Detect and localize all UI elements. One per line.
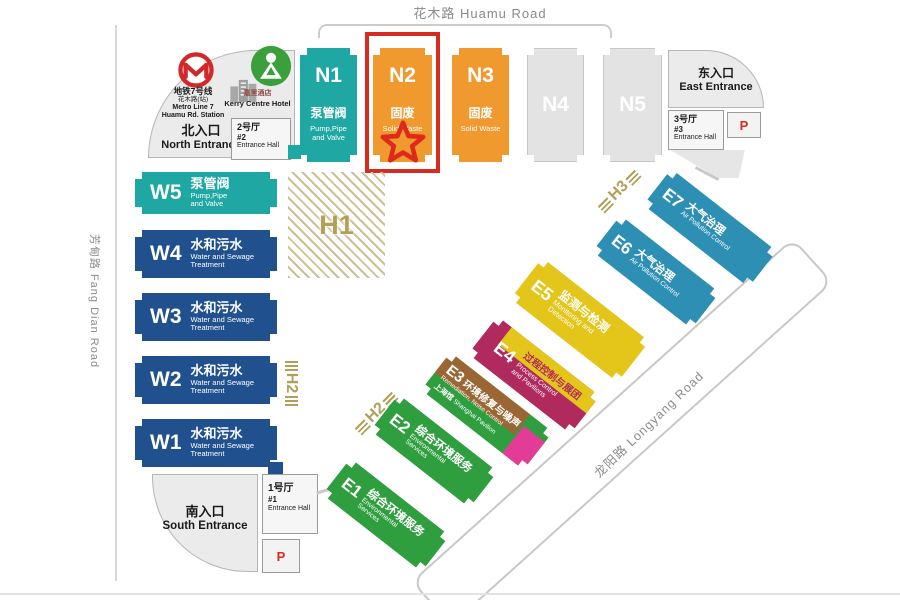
north-connector — [288, 145, 301, 159]
south-connector-tab — [268, 462, 283, 474]
hotel-name-cn: 嘉里酒店 — [205, 90, 310, 99]
hatch-decoration — [285, 395, 298, 406]
entrance-hall-2[interactable]: 2号厅 #2 Entrance Hall — [231, 118, 291, 160]
east-entrance-en: East Entrance — [669, 81, 763, 93]
hall-n3-cn: 固废 — [468, 104, 492, 121]
hall-w2[interactable]: W2 水和污水 Water and SewageTreatment — [135, 356, 277, 404]
hall-w5-id: W5 — [150, 181, 182, 205]
hall-e4-id: E4 — [490, 337, 520, 367]
zone-h2-west: H2 — [276, 352, 306, 414]
hall2-num: #2 — [237, 133, 290, 143]
hotel-name-en: Kerry Centre Hotel — [205, 99, 310, 108]
zone-h1-label: H1 — [319, 210, 354, 241]
south-parking-label: P — [277, 549, 286, 564]
hall-w1-id: W1 — [150, 431, 182, 455]
east-entrance-cn: 东入口 — [669, 64, 763, 81]
south-entrance-area[interactable]: 南入口 South Entrance — [152, 474, 258, 572]
hall-w4-cn: 水和污水 — [191, 238, 255, 252]
hall-w2-cn: 水和污水 — [191, 364, 255, 378]
hall-w5-en: Pump,Pipeand Valve — [191, 192, 230, 209]
hall-n3[interactable]: N3 固废 Solid Waste — [452, 48, 509, 162]
hall-n5[interactable]: N5 — [603, 48, 662, 162]
hall3-en: Entrance Hall — [674, 134, 723, 142]
hall-n4-id: N4 — [542, 93, 569, 117]
kerry-hotel-label: 嘉里酒店 Kerry Centre Hotel — [205, 90, 310, 108]
hall1-num: #1 — [268, 495, 317, 505]
huamu-road-curb — [318, 24, 612, 38]
hall-w2-en: Water and SewageTreatment — [191, 379, 255, 396]
hall-w1[interactable]: W1 水和污水 Water and SewageTreatment — [135, 419, 277, 467]
hall-w3-cn: 水和污水 — [191, 301, 255, 315]
hall-w3-en: Water and SewageTreatment — [191, 316, 255, 333]
hall2-en: Entrance Hall — [237, 142, 290, 150]
hall-n1-id: N1 — [315, 64, 342, 88]
zone-h3: H3 — [582, 154, 656, 228]
hatch-decoration — [354, 418, 371, 435]
hall-w4[interactable]: W4 水和污水 Water and SewageTreatment — [135, 230, 277, 278]
hall-n1[interactable]: N1 泵管阀 Pump,Pipeand Valve — [300, 48, 357, 162]
n2-star-icon — [380, 120, 426, 164]
hall-n3-id: N3 — [467, 64, 494, 88]
hall-w3-id: W3 — [150, 305, 182, 329]
fangdian-road-label: 芳甸路 Fang Dian Road — [87, 191, 103, 411]
south-entrance-en: South Entrance — [153, 520, 257, 532]
hall-n5-id: N5 — [619, 93, 646, 117]
south-entrance-cn: 南入口 — [153, 501, 257, 520]
hall-w2-id: W2 — [150, 368, 182, 392]
hall-w1-en: Water and SewageTreatment — [191, 442, 255, 459]
hall-w4-id: W4 — [150, 242, 182, 266]
hall-w1-cn: 水和污水 — [191, 427, 255, 441]
expo-floor-map: 花木路 Huamu Road 芳甸路 Fang Dian Road 龙阳路 Lo… — [0, 0, 900, 600]
east-entrance-area[interactable]: 东入口 East Entrance — [668, 50, 764, 108]
hall1-cn: 1号厅 — [268, 483, 317, 495]
hall3-cn: 3号厅 — [674, 114, 723, 125]
hall3-num: #3 — [674, 125, 723, 135]
hall-n1-cn: 泵管阀 — [310, 104, 346, 121]
entrance-hall-3[interactable]: 3号厅 #3 Entrance Hall — [668, 110, 724, 150]
hall-w5-cn: 泵管阀 — [191, 177, 230, 191]
zone-h2-west-label: H2 — [282, 373, 300, 393]
hall-w4-en: Water and SewageTreatment — [191, 253, 255, 270]
hall2-cn: 2号厅 — [237, 122, 290, 133]
hatch-decoration — [624, 169, 641, 186]
metro-station-en: Huamu Rd. Station — [145, 112, 241, 120]
fangdian-road-line — [115, 25, 117, 581]
bottom-road-line — [0, 593, 900, 595]
hall-n1-en: Pump,Pipeand Valve — [310, 125, 347, 142]
south-parking[interactable]: P — [262, 539, 300, 573]
hall-n4[interactable]: N4 — [527, 48, 584, 162]
east-parking[interactable]: P — [727, 112, 761, 138]
hatch-decoration — [285, 360, 298, 371]
hatch-decoration — [597, 196, 614, 213]
hall-w3[interactable]: W3 水和污水 Water and SewageTreatment — [135, 293, 277, 341]
hall1-en: Entrance Hall — [268, 505, 317, 513]
east-parking-label: P — [740, 118, 749, 133]
metro-logo-icon — [177, 51, 215, 89]
entrance-hall-1[interactable]: 1号厅 #1 Entrance Hall — [262, 474, 318, 534]
hall-n3-en: Solid Waste — [461, 125, 501, 134]
huamu-road-label: 花木路 Huamu Road — [360, 3, 600, 22]
hall-w5[interactable]: W5 泵管阀 Pump,Pipeand Valve — [135, 172, 277, 214]
zone-h1: H1 — [288, 172, 385, 278]
